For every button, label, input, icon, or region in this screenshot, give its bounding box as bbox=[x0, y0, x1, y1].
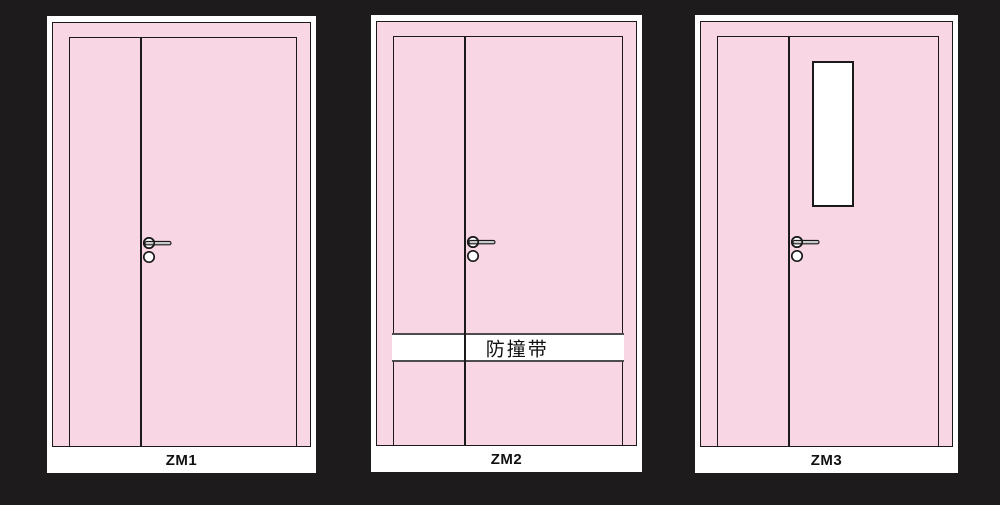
anti-collision-band-label: 防撞带 bbox=[486, 334, 549, 361]
drawing-canvas: ZM1 防撞带 ZM2 bbox=[0, 0, 1000, 505]
door-label-zm1: ZM1 bbox=[47, 447, 316, 473]
door-frame-zm1 bbox=[52, 22, 311, 447]
door-label-zm2: ZM2 bbox=[371, 446, 642, 472]
door-leaves-zm3 bbox=[717, 36, 939, 446]
door-label-zm3: ZM3 bbox=[695, 447, 958, 473]
door-panel-zm3: ZM3 bbox=[695, 15, 958, 473]
door-leaves-zm1 bbox=[69, 37, 297, 446]
door-panel-zm2: 防撞带 ZM2 bbox=[371, 15, 642, 472]
door-handle-icon bbox=[142, 236, 178, 264]
door-frame-zm2: 防撞带 bbox=[376, 21, 637, 446]
vision-panel-window bbox=[812, 61, 854, 207]
door-leaves-zm2: 防撞带 bbox=[393, 36, 623, 445]
door-panel-zm1: ZM1 bbox=[47, 16, 316, 473]
door-frame-zm3 bbox=[700, 21, 953, 447]
door-handle-icon bbox=[790, 235, 826, 263]
door-handle-icon bbox=[466, 235, 502, 263]
anti-collision-band: 防撞带 bbox=[392, 333, 624, 362]
